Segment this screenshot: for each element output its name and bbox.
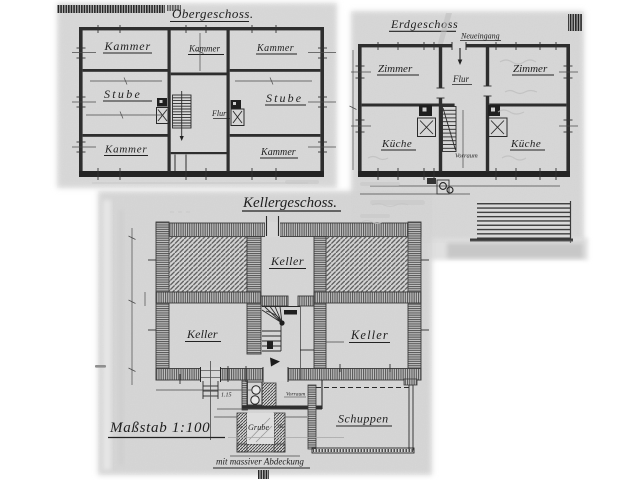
svg-text:1.15: 1.15 [221, 393, 232, 399]
svg-text:Flur: Flur [211, 109, 227, 118]
svg-text:Schuppen: Schuppen [338, 412, 389, 426]
svg-text:Maßstab 1:100: Maßstab 1:100 [109, 420, 210, 436]
svg-text:Kammer: Kammer [256, 43, 294, 54]
svg-text:Kammer: Kammer [104, 39, 152, 53]
svg-text:95: 95 [278, 424, 284, 430]
svg-text:mit massiver Abdeckung: mit massiver Abdeckung [216, 457, 304, 467]
svg-text:Keller: Keller [270, 254, 304, 268]
svg-text:Zimmer: Zimmer [513, 63, 548, 75]
svg-text:Küche: Küche [381, 138, 412, 150]
svg-text:Vorraum: Vorraum [455, 153, 478, 160]
svg-text:Keller: Keller [186, 327, 218, 341]
svg-text:Kammer: Kammer [104, 144, 147, 156]
svg-text:Obergeschoss.: Obergeschoss. [172, 6, 254, 21]
svg-text:Keller: Keller [350, 328, 389, 342]
svg-text:Kammer: Kammer [260, 147, 296, 158]
svg-text:Flur: Flur [452, 74, 469, 84]
svg-text:Stube: Stube [104, 87, 142, 101]
svg-text:Zimmer: Zimmer [378, 63, 413, 75]
svg-text:Grube: Grube [248, 423, 269, 432]
svg-text:Küche: Küche [510, 138, 541, 150]
svg-text:Neueingang: Neueingang [460, 32, 500, 41]
svg-text:Vorraum: Vorraum [286, 392, 305, 398]
svg-text:95: 95 [237, 424, 243, 430]
svg-text:Stube: Stube [266, 91, 303, 105]
svg-text:Kammer: Kammer [188, 44, 220, 54]
svg-text:Kellergeschoss.: Kellergeschoss. [242, 195, 337, 211]
